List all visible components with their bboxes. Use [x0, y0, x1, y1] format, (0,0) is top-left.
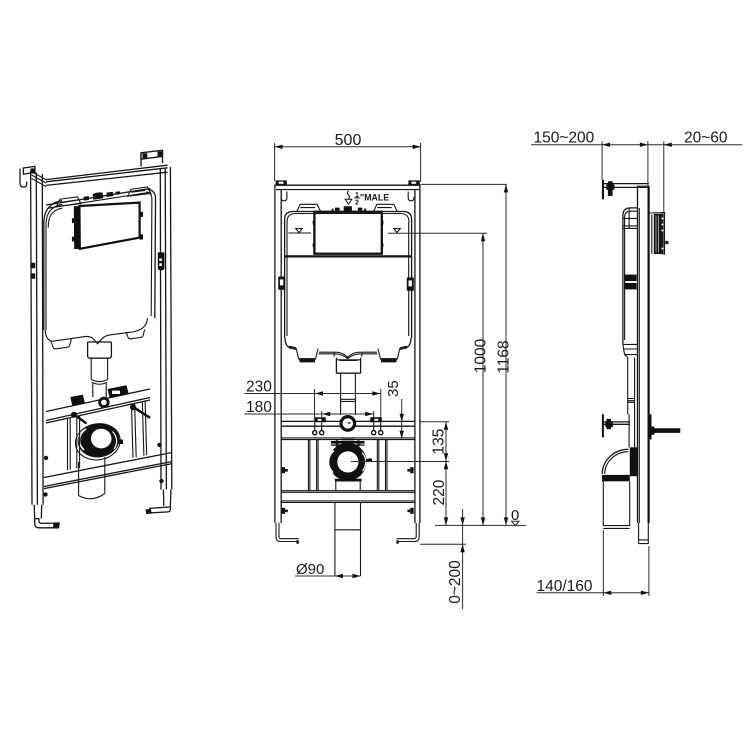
svg-text:Ø90: Ø90	[296, 561, 324, 578]
svg-text:0~200: 0~200	[447, 560, 464, 604]
svg-text:2: 2	[355, 200, 359, 207]
svg-text:180: 180	[246, 399, 272, 416]
svg-text:35: 35	[385, 380, 402, 397]
svg-text:20~60: 20~60	[684, 130, 728, 147]
svg-text:″MALE: ″MALE	[360, 192, 389, 202]
svg-text:500: 500	[335, 132, 362, 149]
svg-text:220: 220	[431, 479, 448, 505]
svg-text:150~200: 150~200	[534, 130, 595, 147]
svg-text:1000: 1000	[473, 338, 490, 373]
svg-text:1168: 1168	[496, 340, 513, 373]
svg-text:135: 135	[431, 429, 448, 455]
svg-text:140/160: 140/160	[537, 578, 593, 595]
svg-text:230: 230	[246, 379, 272, 396]
